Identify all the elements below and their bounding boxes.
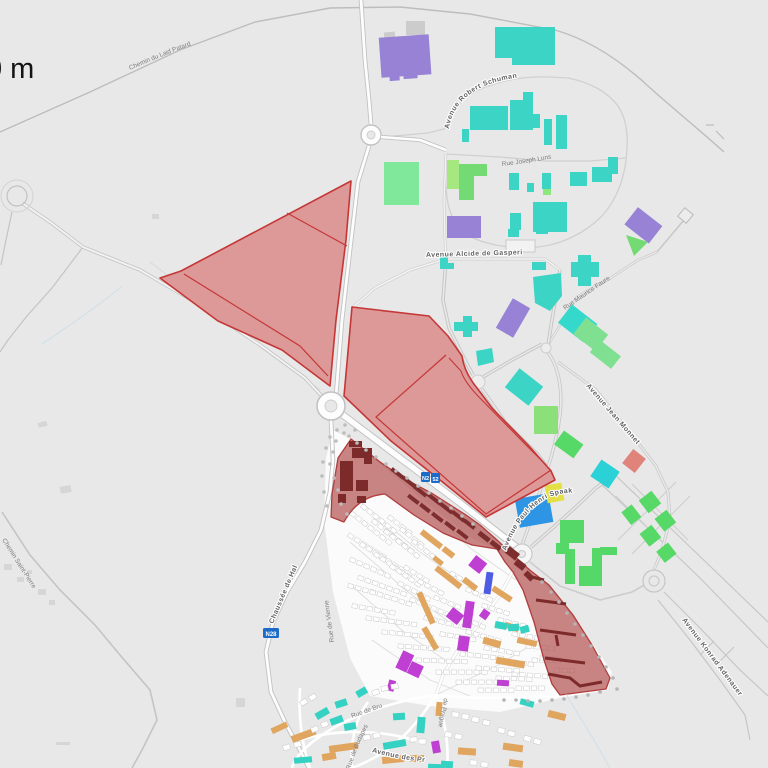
svg-text:52: 52: [432, 477, 438, 483]
svg-text:0 m: 0 m: [0, 53, 34, 85]
svg-text:N2: N2: [422, 476, 429, 482]
svg-text:N28: N28: [265, 632, 277, 638]
